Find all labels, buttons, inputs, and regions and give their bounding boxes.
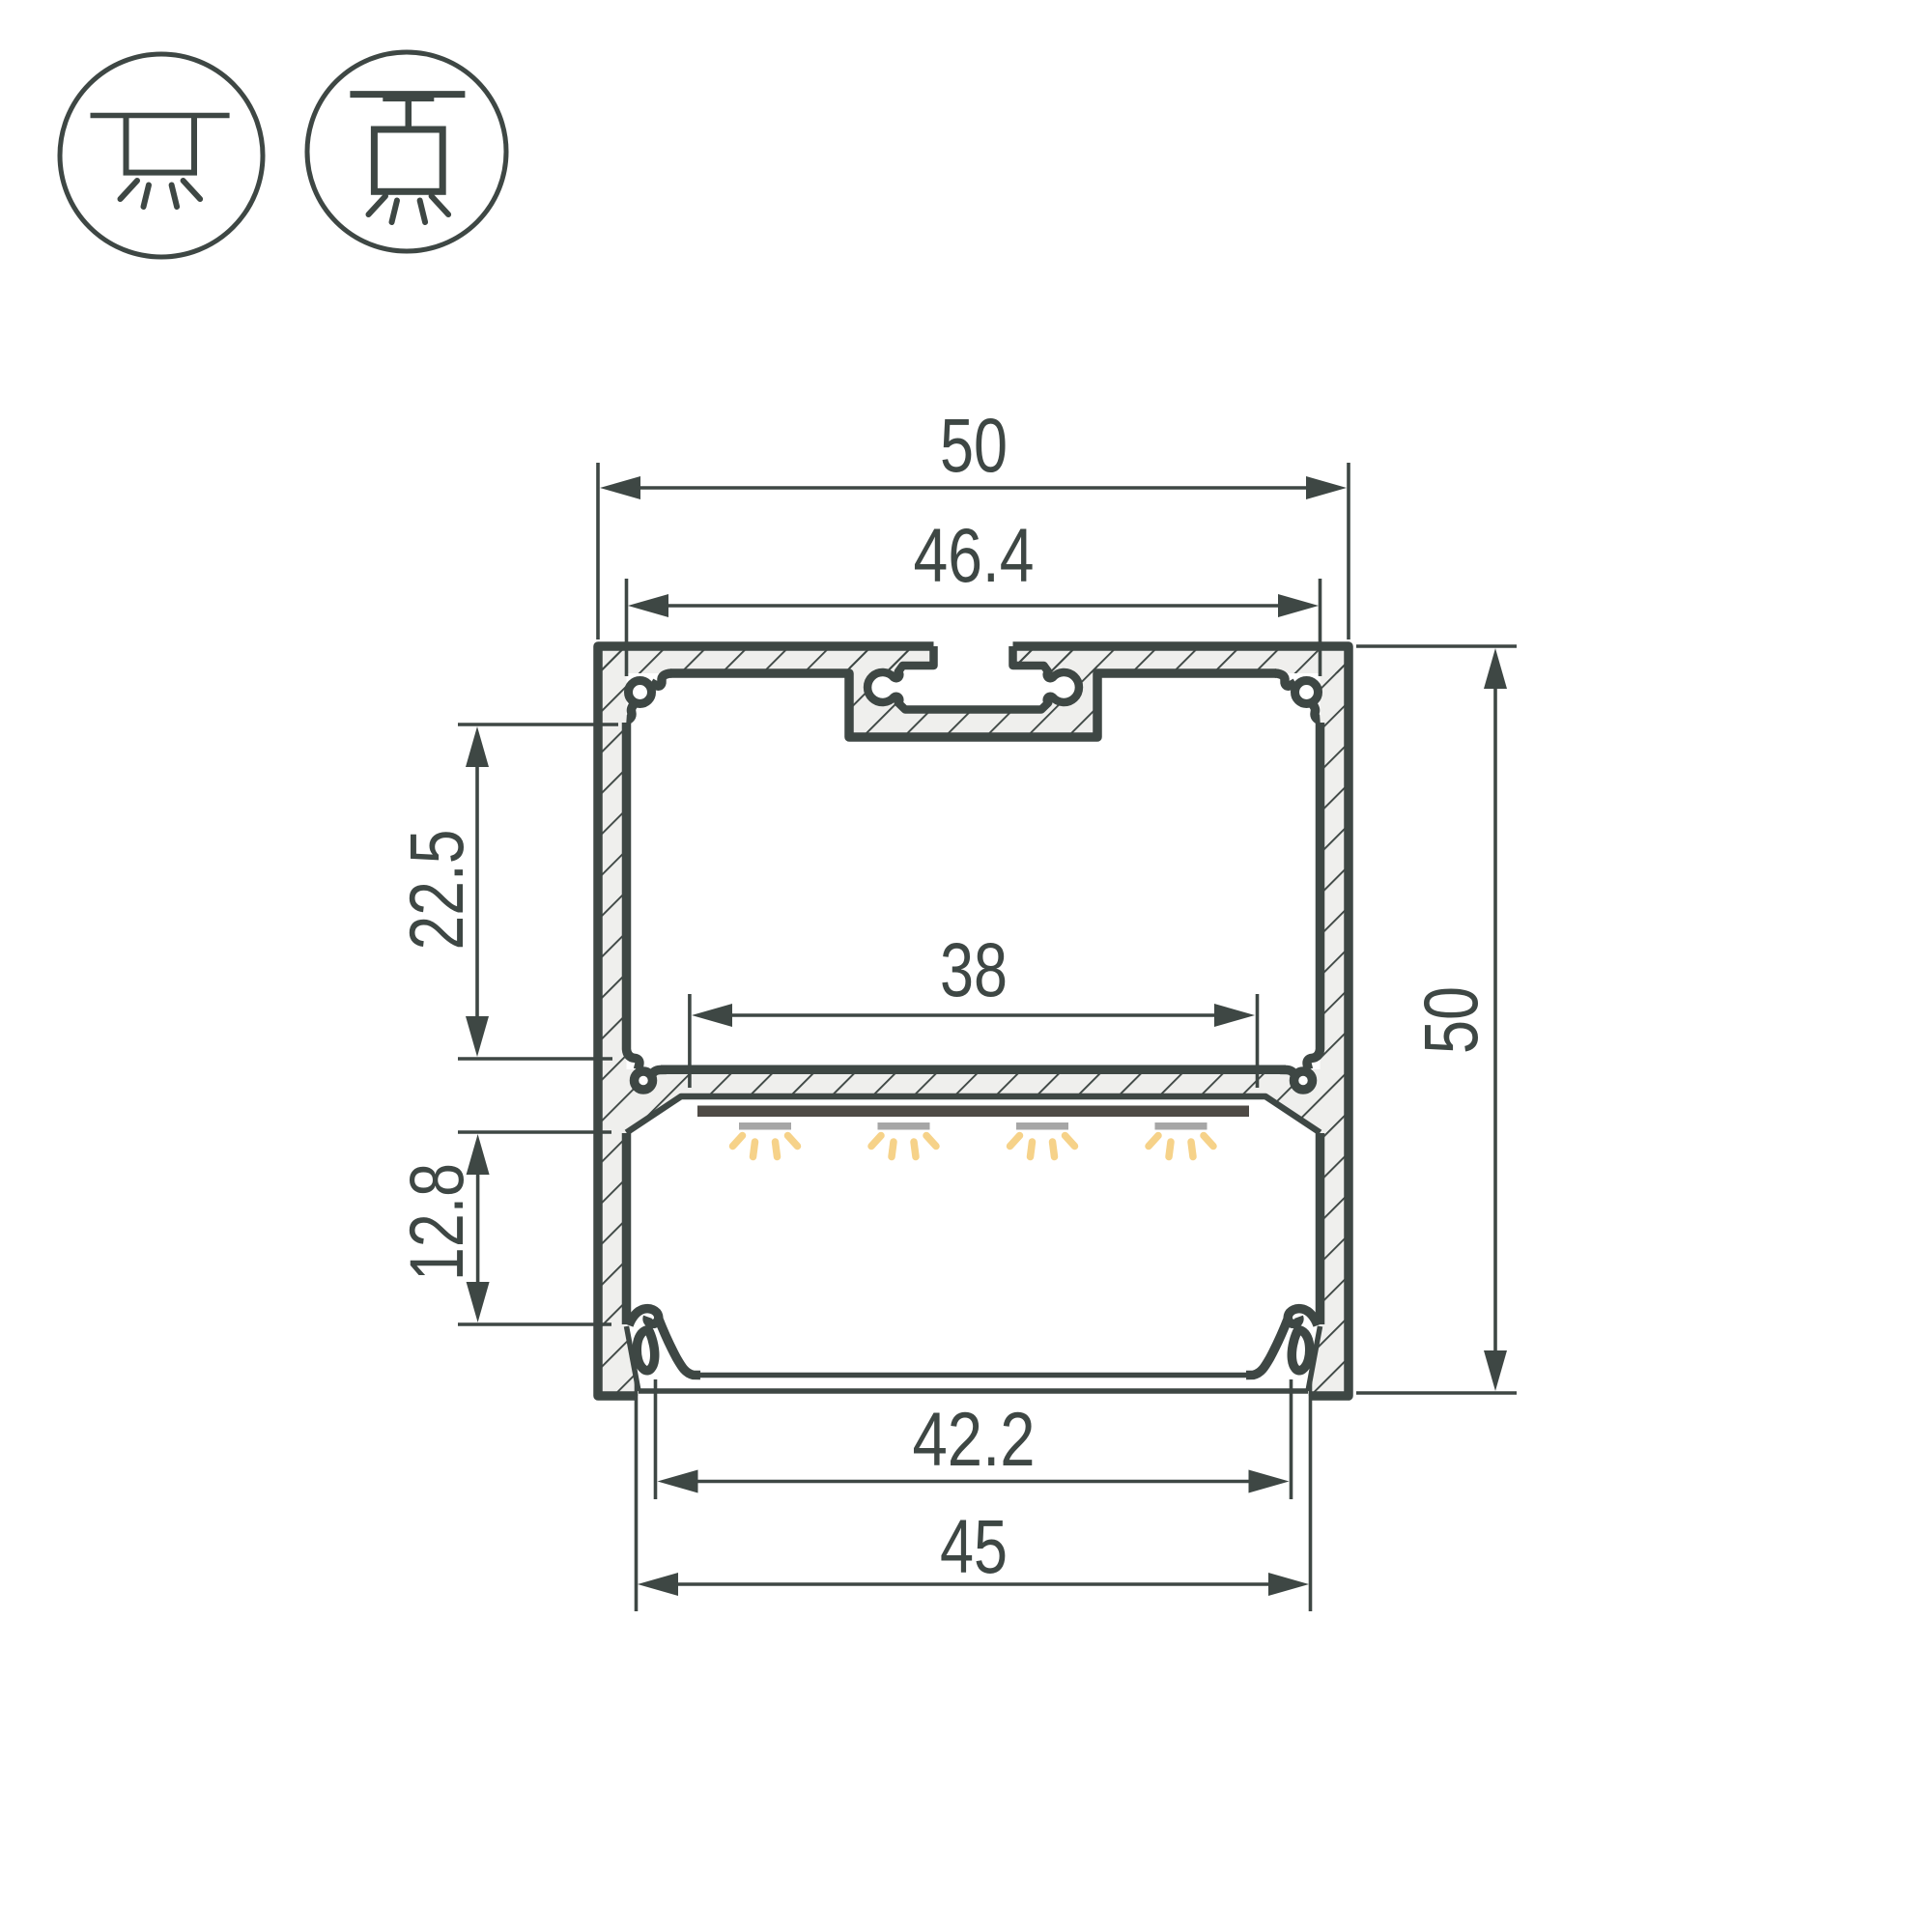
svg-text:22.5: 22.5: [393, 830, 479, 951]
svg-text:46.4: 46.4: [914, 512, 1035, 598]
svg-text:38: 38: [940, 926, 1008, 1012]
svg-text:50: 50: [1407, 986, 1493, 1054]
svg-text:50: 50: [940, 402, 1008, 488]
svg-text:42.2: 42.2: [913, 1396, 1036, 1482]
svg-text:12.8: 12.8: [393, 1163, 479, 1281]
svg-text:45: 45: [940, 1503, 1008, 1589]
